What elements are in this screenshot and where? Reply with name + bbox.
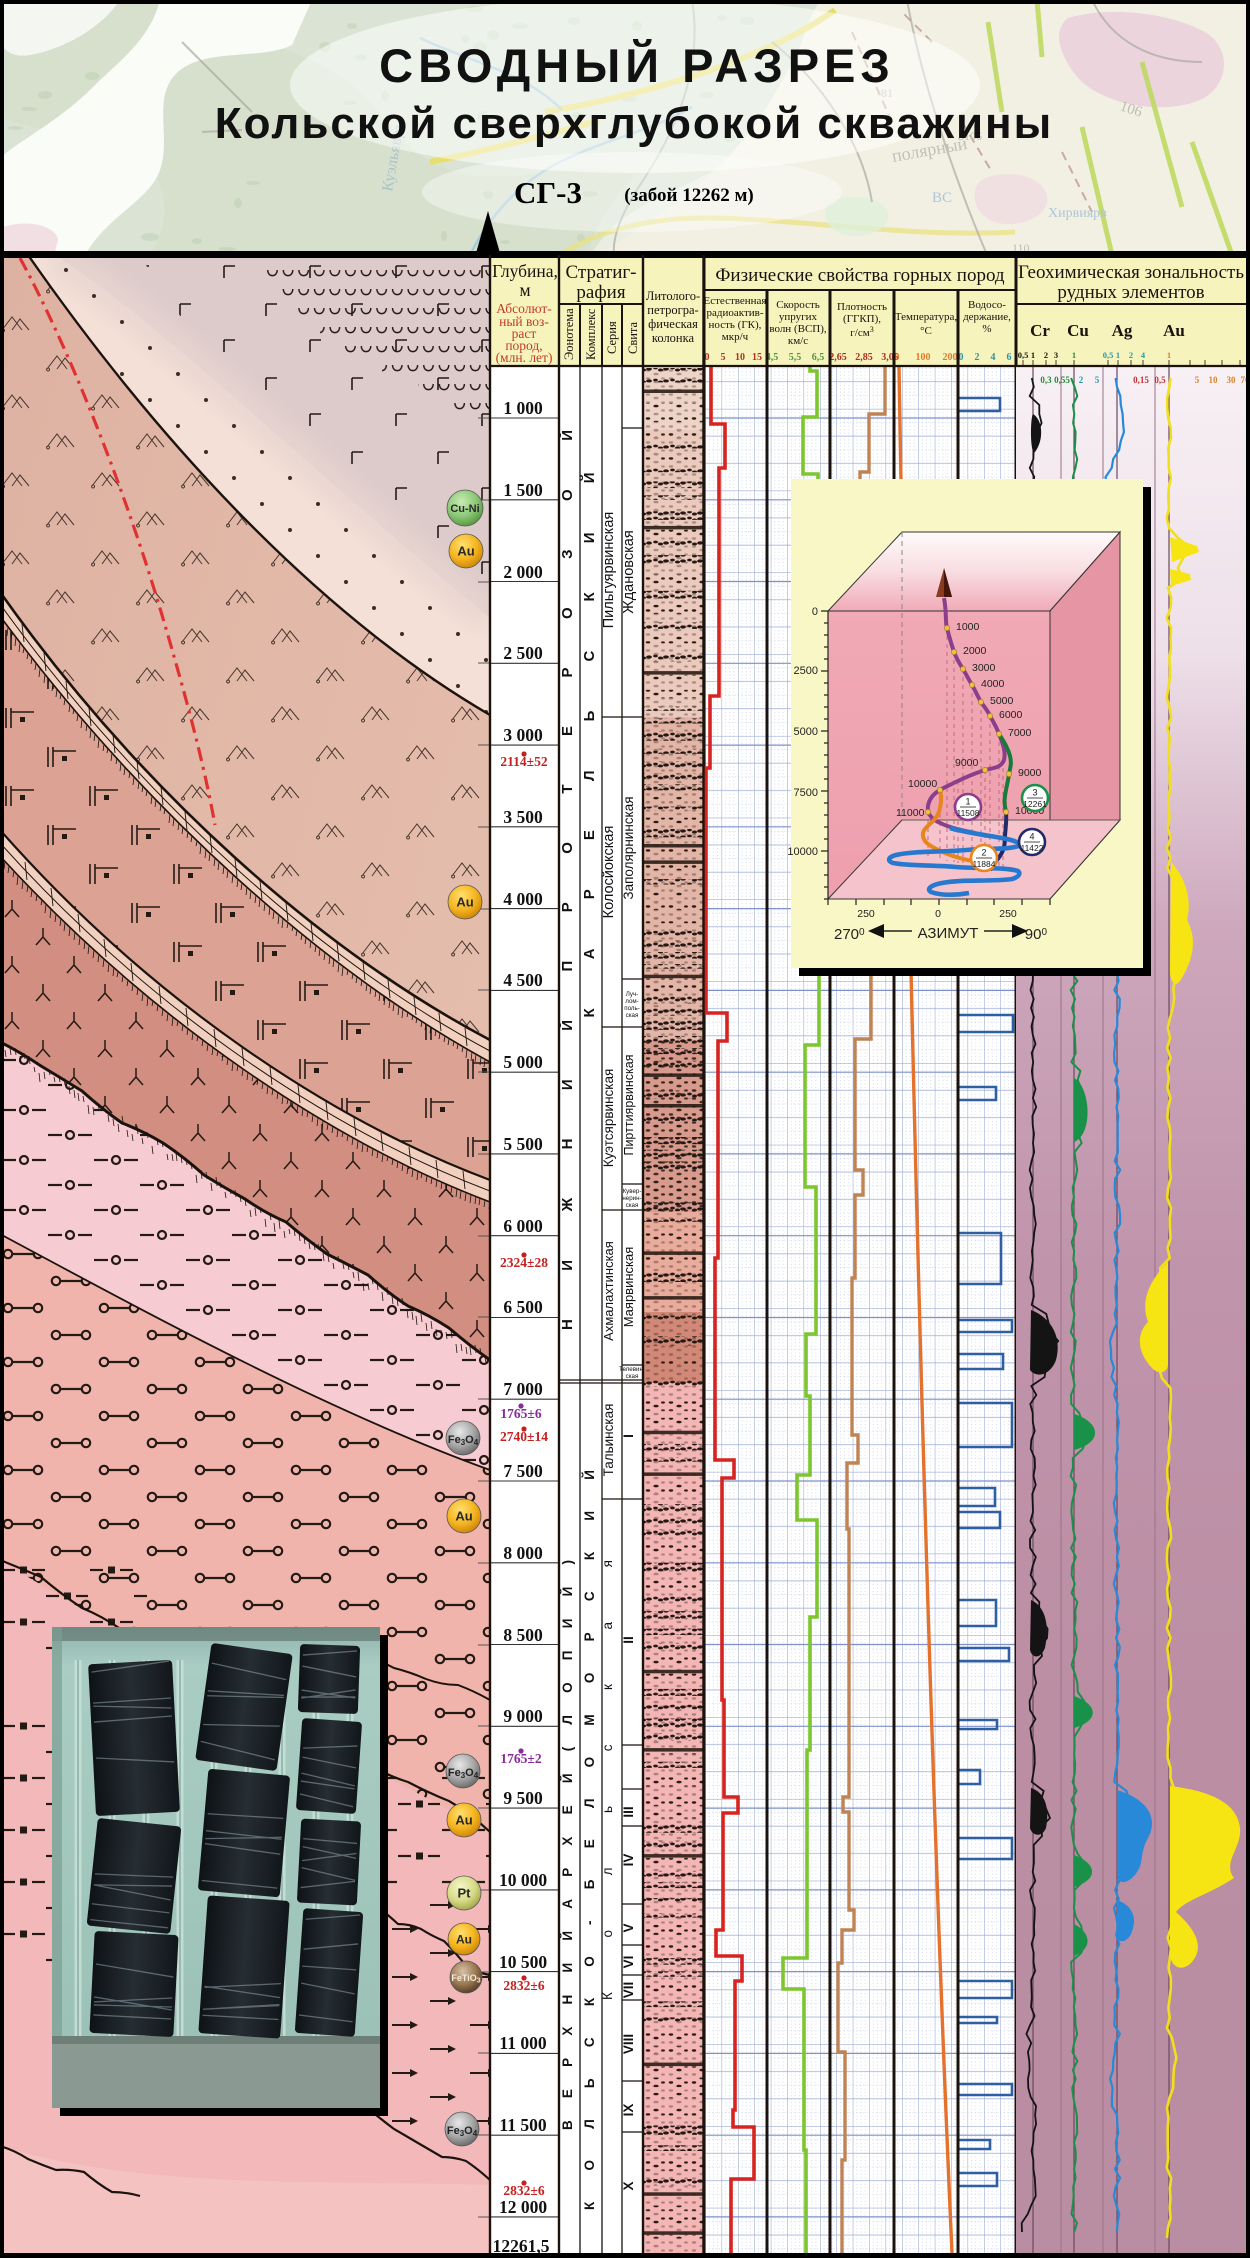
svg-text:0,55: 0,55 bbox=[1054, 375, 1070, 385]
svg-text:VII: VII bbox=[621, 1982, 636, 1999]
svg-text:ВС: ВС bbox=[932, 190, 952, 206]
svg-text:ность (ГК),: ность (ГК), bbox=[709, 319, 762, 331]
svg-text:4: 4 bbox=[1029, 832, 1034, 842]
svg-text:12 000: 12 000 bbox=[499, 2197, 547, 2217]
svg-text:0,5: 0,5 bbox=[1018, 350, 1029, 360]
svg-text:Глубина,: Глубина, bbox=[492, 261, 558, 281]
svg-text:7500: 7500 bbox=[794, 787, 818, 799]
svg-text:2: 2 bbox=[1044, 350, 1048, 360]
svg-text:V: V bbox=[621, 1923, 636, 1932]
svg-text:6,5: 6,5 bbox=[812, 352, 825, 363]
svg-text:2: 2 bbox=[1079, 375, 1084, 385]
svg-text:12261: 12261 bbox=[1023, 799, 1047, 809]
svg-text:100: 100 bbox=[916, 352, 931, 363]
svg-text:3: 3 bbox=[1054, 350, 1058, 360]
svg-text:Литолого-: Литолого- bbox=[646, 289, 700, 303]
svg-text:Телевин-: Телевин- bbox=[619, 1366, 645, 1373]
svg-text:0,3: 0,3 bbox=[1040, 375, 1052, 385]
svg-text:11 500: 11 500 bbox=[499, 2115, 546, 2135]
svg-text:Пильгуярвинская: Пильгуярвинская bbox=[601, 512, 617, 628]
svg-text:км/с: км/с bbox=[788, 335, 808, 347]
svg-text:Cu-Ni: Cu-Ni bbox=[450, 503, 479, 515]
svg-text:2 000: 2 000 bbox=[503, 562, 543, 582]
svg-text:1000: 1000 bbox=[956, 621, 980, 633]
svg-text:°С: °С bbox=[920, 325, 932, 337]
svg-text:7 500: 7 500 bbox=[503, 1461, 543, 1481]
svg-text:5: 5 bbox=[1095, 375, 1100, 385]
svg-text:8 500: 8 500 bbox=[503, 1625, 543, 1645]
svg-text:IV: IV bbox=[621, 1854, 636, 1867]
svg-text:X: X bbox=[621, 2181, 636, 2190]
svg-text:Куэтсярвинская: Куэтсярвинская bbox=[601, 1069, 616, 1168]
svg-text:9 000: 9 000 bbox=[503, 1706, 543, 1726]
svg-text:0,5: 0,5 bbox=[1103, 350, 1114, 360]
svg-text:Колосйокская: Колосйокская bbox=[601, 826, 617, 919]
svg-text:Cr: Cr bbox=[1030, 321, 1050, 340]
svg-text:Стратиг-: Стратиг- bbox=[566, 262, 637, 283]
svg-text:СВОДНЫЙ РАЗРЕЗ: СВОДНЫЙ РАЗРЕЗ bbox=[379, 39, 895, 92]
svg-text:Ждановская: Ждановская bbox=[621, 530, 637, 613]
svg-text:4: 4 bbox=[991, 352, 996, 363]
svg-text:рудных элементов: рудных элементов bbox=[1057, 282, 1204, 303]
svg-text:5 000: 5 000 bbox=[503, 1052, 543, 1072]
svg-text:10 500: 10 500 bbox=[499, 1952, 547, 1972]
svg-text:упругих: упругих bbox=[779, 311, 818, 323]
svg-text:1765±6: 1765±6 bbox=[500, 1406, 541, 1421]
svg-text:2: 2 bbox=[981, 848, 986, 858]
svg-text:11000: 11000 bbox=[896, 807, 925, 819]
svg-text:К о л ь с к а я: К о л ь с к а я bbox=[600, 1560, 615, 2000]
svg-text:2740±14: 2740±14 bbox=[500, 1429, 548, 1444]
svg-text:2324±28: 2324±28 bbox=[500, 1255, 548, 1270]
svg-text:Геохимическая зональность: Геохимическая зональность bbox=[1018, 262, 1244, 283]
svg-text:%: % bbox=[982, 323, 991, 335]
svg-text:2: 2 bbox=[975, 352, 980, 363]
svg-text:Пирттиярвинская: Пирттиярвинская bbox=[622, 1054, 636, 1155]
svg-text:11508: 11508 bbox=[956, 808, 979, 818]
svg-text:250: 250 bbox=[999, 908, 1017, 920]
svg-text:Хирвиярв: Хирвиярв bbox=[1048, 206, 1107, 221]
svg-text:10000: 10000 bbox=[908, 778, 937, 790]
svg-text:рафия: рафия bbox=[576, 282, 625, 303]
svg-text:III: III bbox=[621, 1806, 636, 1817]
svg-text:FeTiO3: FeTiO3 bbox=[451, 1973, 480, 1985]
svg-text:Cu: Cu bbox=[1067, 321, 1089, 340]
svg-text:250: 250 bbox=[857, 908, 875, 920]
svg-text:4 500: 4 500 bbox=[503, 970, 543, 990]
svg-text:3: 3 bbox=[1032, 788, 1037, 798]
svg-text:1: 1 bbox=[965, 797, 970, 807]
svg-text:10 000: 10 000 bbox=[499, 1870, 547, 1890]
svg-text:Pt: Pt bbox=[458, 1886, 472, 1901]
svg-text:колонка: колонка bbox=[652, 331, 695, 345]
svg-text:0: 0 bbox=[812, 606, 818, 618]
svg-text:Au: Au bbox=[456, 1932, 472, 1946]
svg-text:АЗИМУТ: АЗИМУТ bbox=[918, 925, 979, 942]
svg-text:1 000: 1 000 bbox=[503, 398, 543, 418]
svg-text:Au: Au bbox=[1163, 321, 1185, 340]
svg-text:1: 1 bbox=[1072, 350, 1076, 360]
svg-text:2832±6: 2832±6 bbox=[503, 2183, 544, 2198]
svg-text:поль-: поль- bbox=[624, 1005, 640, 1012]
svg-text:СГ-3: СГ-3 bbox=[514, 175, 582, 210]
svg-text:ская: ская bbox=[626, 1373, 639, 1380]
svg-text:фическая: фическая bbox=[648, 317, 698, 331]
svg-text:Физические свойства горных: Физические свойства горных пород bbox=[715, 265, 1005, 286]
svg-text:(млн. лет): (млн. лет) bbox=[496, 350, 553, 365]
svg-text:0: 0 bbox=[935, 908, 941, 920]
svg-text:3 500: 3 500 bbox=[503, 807, 543, 827]
svg-text:Свита: Свита bbox=[626, 321, 640, 354]
svg-text:4000: 4000 bbox=[981, 678, 1005, 690]
svg-text:4 000: 4 000 bbox=[503, 889, 543, 909]
svg-text:2500: 2500 bbox=[794, 665, 818, 677]
svg-text:9000: 9000 bbox=[955, 757, 979, 769]
svg-text:мкр/ч: мкр/ч bbox=[722, 331, 749, 343]
svg-text:5: 5 bbox=[721, 352, 726, 363]
svg-text:Au: Au bbox=[455, 1509, 472, 1524]
svg-text:200: 200 bbox=[943, 352, 958, 363]
svg-text:(ГГКП),: (ГГКП), bbox=[843, 313, 881, 325]
svg-text:7000: 7000 bbox=[1008, 727, 1032, 739]
svg-text:5000: 5000 bbox=[990, 695, 1014, 707]
svg-text:нерин-: нерин- bbox=[622, 1195, 641, 1202]
svg-text:3000: 3000 bbox=[972, 662, 996, 674]
svg-text:Кувер-: Кувер- bbox=[623, 1188, 642, 1195]
svg-text:11422: 11422 bbox=[1020, 843, 1043, 853]
svg-text:I: I bbox=[621, 1434, 636, 1438]
svg-text:1: 1 bbox=[1167, 350, 1171, 360]
svg-text:Эонотема: Эонотема bbox=[562, 308, 576, 360]
svg-text:Скорость: Скорость bbox=[776, 299, 820, 311]
svg-text:(забой 12262 м): (забой 12262 м) bbox=[624, 185, 753, 206]
svg-text:11884: 11884 bbox=[972, 859, 995, 869]
svg-text:9 500: 9 500 bbox=[503, 1788, 543, 1808]
svg-text:Маярвинская: Маярвинская bbox=[621, 1247, 636, 1328]
svg-text:2114±52: 2114±52 bbox=[500, 754, 547, 769]
svg-text:2 500: 2 500 bbox=[503, 643, 543, 663]
svg-text:15: 15 bbox=[752, 352, 762, 363]
svg-text:Водосо-: Водосо- bbox=[968, 299, 1006, 311]
svg-text:петрогра-: петрогра- bbox=[647, 303, 698, 317]
svg-text:2000: 2000 bbox=[963, 645, 987, 657]
svg-text:ская: ская bbox=[626, 1202, 639, 1209]
svg-text:9000: 9000 bbox=[1018, 767, 1042, 779]
svg-text:Плотность: Плотность bbox=[837, 301, 887, 313]
svg-text:волн (ВСП),: волн (ВСП), bbox=[769, 323, 827, 335]
svg-text:5,5: 5,5 bbox=[789, 352, 802, 363]
svg-text:0,5: 0,5 bbox=[1154, 375, 1166, 385]
svg-text:10000: 10000 bbox=[787, 846, 818, 858]
svg-text:5: 5 bbox=[1195, 375, 1200, 385]
svg-text:ская: ская bbox=[626, 1012, 639, 1019]
svg-text:2: 2 bbox=[1129, 350, 1133, 360]
svg-text:1: 1 bbox=[1031, 350, 1035, 360]
svg-text:3 000: 3 000 bbox=[503, 725, 543, 745]
svg-text:5000: 5000 bbox=[794, 726, 818, 738]
svg-text:2,65: 2,65 bbox=[829, 352, 847, 363]
svg-text:6000: 6000 bbox=[999, 709, 1023, 721]
svg-text:6 000: 6 000 bbox=[503, 1216, 543, 1236]
svg-text:радиоактив-: радиоактив- bbox=[707, 307, 764, 319]
svg-text:Луч-: Луч- bbox=[626, 991, 639, 998]
svg-text:6: 6 bbox=[1007, 352, 1012, 363]
svg-text:2,85: 2,85 bbox=[855, 352, 873, 363]
svg-text:30: 30 bbox=[1227, 375, 1237, 385]
svg-text:IX: IX bbox=[621, 2104, 636, 2117]
svg-text:8 000: 8 000 bbox=[503, 1543, 543, 1563]
svg-text:10: 10 bbox=[735, 352, 745, 363]
svg-text:0,15: 0,15 bbox=[1133, 375, 1149, 385]
svg-text:держание,: держание, bbox=[963, 311, 1011, 323]
svg-text:Тальинская: Тальинская bbox=[601, 1404, 616, 1477]
svg-text:10: 10 bbox=[1209, 375, 1219, 385]
svg-text:Au: Au bbox=[455, 1813, 472, 1828]
svg-text:Кольской сверхглубокой скважин: Кольской сверхглубокой скважины bbox=[215, 99, 1053, 148]
svg-text:5 500: 5 500 bbox=[503, 1134, 543, 1154]
svg-text:7 000: 7 000 bbox=[503, 1379, 543, 1399]
svg-text:лом-: лом- bbox=[625, 998, 638, 1005]
svg-text:2832±6: 2832±6 bbox=[503, 1978, 544, 1993]
svg-text:м: м bbox=[519, 280, 530, 300]
svg-text:6 500: 6 500 bbox=[503, 1297, 543, 1317]
svg-text:VIII: VIII bbox=[621, 2034, 636, 2054]
svg-text:11 000: 11 000 bbox=[499, 2033, 546, 2053]
svg-text:Серия: Серия bbox=[605, 321, 619, 354]
svg-text:1: 1 bbox=[1116, 350, 1120, 360]
svg-text:VI: VI bbox=[621, 1956, 636, 1969]
svg-text:1765±2: 1765±2 bbox=[500, 1751, 541, 1766]
svg-text:Ахмалахтинская: Ахмалахтинская bbox=[601, 1241, 616, 1341]
svg-text:Естественная: Естественная bbox=[704, 295, 767, 307]
svg-text:Au: Au bbox=[456, 895, 473, 910]
svg-text:II: II bbox=[621, 1636, 636, 1644]
svg-text:Au: Au bbox=[457, 544, 474, 559]
svg-text:1 500: 1 500 bbox=[503, 480, 543, 500]
svg-text:Ag: Ag bbox=[1112, 321, 1133, 340]
svg-text:Комплекс: Комплекс bbox=[584, 308, 598, 360]
svg-text:Температура,: Температура, bbox=[895, 311, 958, 323]
svg-text:Заполярнинская: Заполярнинская bbox=[621, 796, 636, 899]
